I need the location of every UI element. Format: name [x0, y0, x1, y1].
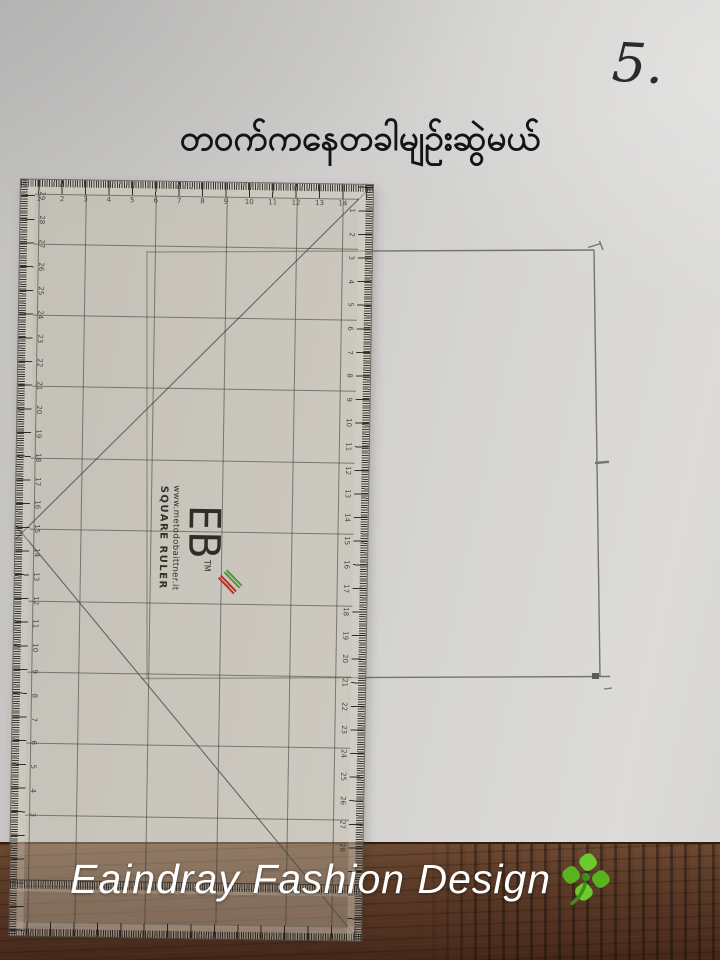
scale-number: 22 [36, 358, 43, 367]
scale-number: 17 [34, 477, 41, 486]
pencil-corner-blob [592, 673, 599, 679]
scale-number: 10 [345, 419, 352, 428]
scale-number: 14 [338, 200, 347, 207]
scale-number: 1 [348, 208, 355, 213]
scale-number: 21 [341, 678, 348, 687]
scale-number: 27 [37, 239, 44, 248]
product-label: SQUARE RULER [157, 486, 170, 590]
scale-number: 21 [35, 382, 42, 391]
scale-number: 6 [30, 741, 37, 746]
scale-number: 6 [153, 198, 158, 205]
scale-number: 20 [35, 405, 42, 414]
handwritten-step-number: 5. [611, 31, 666, 97]
scale-number: 27 [338, 820, 345, 829]
scale-number: 20 [341, 654, 348, 663]
scale-number: 16 [33, 501, 40, 510]
pencil-half-tick [595, 462, 609, 463]
scale-number: 5 [130, 197, 135, 204]
scale-number: 2 [348, 232, 355, 237]
scale-number: 12 [32, 596, 39, 605]
scale-number: 7 [177, 198, 182, 205]
scale-number: 29 [38, 191, 45, 200]
scale-number: 12 [292, 200, 301, 207]
scale-number: 26 [37, 263, 44, 272]
scale-number: 9 [224, 199, 229, 206]
scale-number: 12 [344, 466, 351, 475]
trademark-label: TM [202, 560, 212, 572]
scale-number: 22 [340, 702, 347, 711]
scale-number: 8 [30, 693, 37, 698]
scale-number: 3 [347, 256, 354, 261]
four-leaf-clover-icon [561, 852, 611, 906]
scale-number: 15 [33, 524, 40, 533]
scale-number: 16 [342, 560, 349, 569]
scale-number: 8 [200, 198, 205, 205]
scale-number: 14 [33, 548, 40, 557]
scale-number: 14 [343, 513, 350, 522]
watermark-text: Eaindray Fashion Design [70, 856, 551, 903]
scale-number: 28 [338, 843, 345, 852]
scale-number: 5 [347, 303, 354, 308]
italian-flag-stripes-icon [218, 569, 243, 594]
scale-number: 4 [29, 788, 36, 793]
scale-number: 28 [38, 215, 45, 224]
pencil-corner-dash [604, 688, 612, 689]
scale-number: 9 [345, 397, 352, 402]
scale-number: 8 [345, 374, 352, 379]
ruler-logo: EBTM www.metodobaittner.it SQUARE RULER [126, 467, 268, 609]
scale-number: 7 [346, 350, 353, 355]
scale-number: 13 [315, 200, 324, 207]
scale-number: 10 [245, 199, 254, 206]
scale-number: 7 [30, 717, 37, 722]
scale-number: 24 [339, 749, 346, 758]
scale-number: 19 [34, 429, 41, 438]
page-title: တဝက်ကနေတခါမျဉ်းဆွဲမယ် [0, 116, 720, 168]
scale-number: 9 [31, 669, 38, 674]
scale-number: 3 [29, 812, 36, 817]
scale-number: 5 [29, 765, 36, 770]
scale-number: 18 [34, 453, 41, 462]
brand-monogram: EBTM [182, 505, 224, 572]
scale-number: 23 [36, 334, 43, 343]
scale-number: 10 [31, 643, 38, 652]
brand-monogram-letters: EB [178, 505, 229, 560]
scale-number: 23 [340, 725, 347, 734]
scale-number: 6 [346, 326, 353, 331]
scale-number: 25 [339, 772, 346, 781]
scale-number: 25 [37, 286, 44, 295]
scale-number: 13 [344, 489, 351, 498]
scale-number: 19 [341, 631, 348, 640]
scale-number: 17 [342, 584, 349, 593]
watermark: Eaindray Fashion Design [70, 852, 611, 906]
scale-number: 11 [268, 199, 277, 206]
scale-number: 11 [344, 442, 351, 451]
scale-number: 3 [83, 196, 88, 203]
scale-number: 4 [347, 279, 354, 284]
square-ruler: 1234567891011121314 29282726252423222120… [8, 178, 374, 941]
scale-number: 15 [343, 536, 350, 545]
scale-number: 4 [107, 197, 112, 204]
scale-number: 18 [342, 607, 349, 616]
scale-number: 11 [31, 620, 38, 629]
scale-number: 2 [60, 196, 65, 203]
scale-number: 26 [339, 796, 346, 805]
scale-number: 24 [36, 310, 43, 319]
scale-number: 13 [32, 572, 39, 581]
photo-canvas: 1234567891011121314 29282726252423222120… [0, 0, 720, 960]
pencil-corner-hook [588, 241, 603, 250]
